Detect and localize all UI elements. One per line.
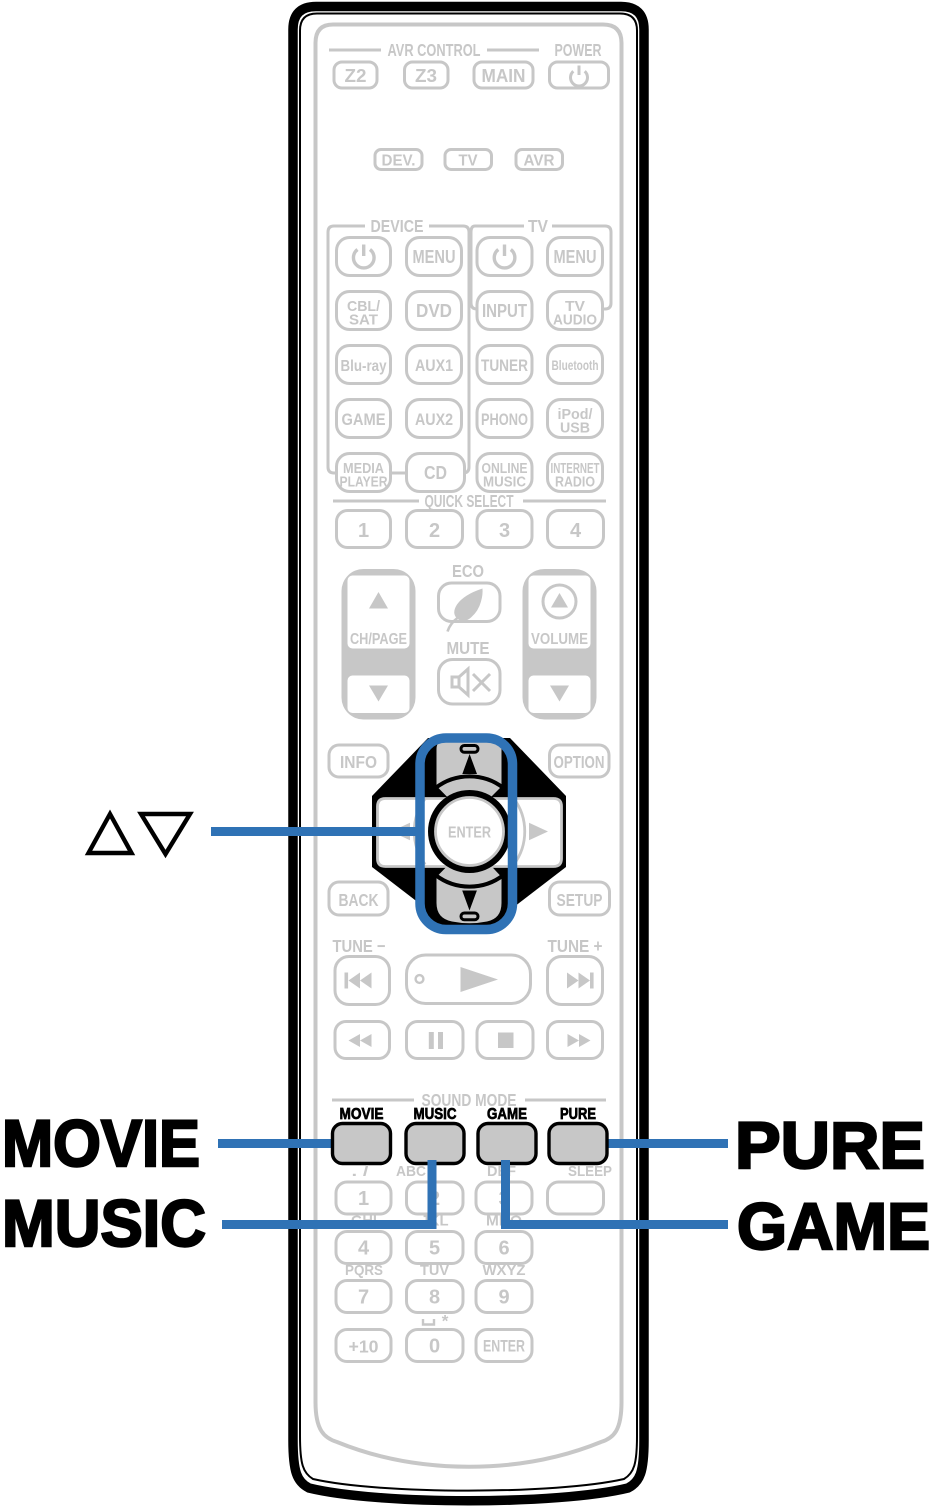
svg-text:9: 9 bbox=[498, 1287, 509, 1309]
svg-text:TUNE +: TUNE + bbox=[548, 936, 603, 956]
svg-text:POWER: POWER bbox=[555, 40, 602, 60]
svg-text:6: 6 bbox=[498, 1238, 509, 1260]
svg-text:0: 0 bbox=[429, 1336, 440, 1358]
svg-text:QUICK SELECT: QUICK SELECT bbox=[425, 491, 514, 511]
svg-text:*: * bbox=[442, 1312, 449, 1331]
svg-text:DVD: DVD bbox=[416, 300, 452, 321]
svg-text:7: 7 bbox=[358, 1287, 369, 1309]
svg-text:Bluetooth: Bluetooth bbox=[552, 358, 599, 373]
svg-text:USB: USB bbox=[560, 420, 590, 437]
svg-text:AUDIO: AUDIO bbox=[553, 312, 597, 329]
svg-text:TV: TV bbox=[528, 216, 548, 236]
svg-text:DEVICE: DEVICE bbox=[371, 216, 424, 236]
svg-text:Z3: Z3 bbox=[415, 66, 437, 86]
svg-text:BACK: BACK bbox=[339, 890, 379, 910]
svg-text:PURE: PURE bbox=[560, 1106, 596, 1123]
svg-text:VOLUME: VOLUME bbox=[531, 631, 588, 648]
svg-text:AUX2: AUX2 bbox=[415, 410, 453, 429]
svg-text:CD: CD bbox=[424, 462, 447, 483]
svg-text:MOVIE: MOVIE bbox=[2, 1106, 200, 1180]
svg-text:MENU: MENU bbox=[413, 246, 456, 267]
svg-text:. /: . / bbox=[352, 1163, 370, 1180]
svg-text:TUNER: TUNER bbox=[481, 356, 528, 375]
svg-text:8: 8 bbox=[429, 1287, 440, 1309]
svg-text:INFO: INFO bbox=[340, 752, 377, 772]
svg-text:PLAYER: PLAYER bbox=[340, 475, 388, 491]
svg-text:MUSIC: MUSIC bbox=[483, 475, 526, 491]
svg-text:SAT: SAT bbox=[349, 312, 378, 329]
svg-text:AUX1: AUX1 bbox=[415, 356, 453, 375]
svg-text:OPTION: OPTION bbox=[554, 752, 605, 772]
svg-text:MUTE: MUTE bbox=[447, 638, 490, 658]
svg-text:TV: TV bbox=[459, 153, 479, 170]
svg-text:TUV: TUV bbox=[420, 1262, 449, 1279]
svg-text:GAME: GAME bbox=[737, 1189, 930, 1263]
svg-text:ECO: ECO bbox=[452, 561, 484, 581]
svg-text:MUSIC: MUSIC bbox=[414, 1106, 457, 1123]
svg-text:PURE: PURE bbox=[735, 1108, 925, 1182]
svg-text:CH/PAGE: CH/PAGE bbox=[350, 631, 407, 648]
svg-text:MAIN: MAIN bbox=[482, 66, 526, 86]
svg-text:AVR CONTROL: AVR CONTROL bbox=[388, 40, 481, 60]
svg-text:ENTER: ENTER bbox=[448, 825, 491, 842]
svg-text:MENU: MENU bbox=[554, 246, 597, 267]
svg-text:RADIO: RADIO bbox=[555, 475, 595, 491]
svg-text:Blu-ray: Blu-ray bbox=[341, 358, 387, 375]
svg-text:PQRS: PQRS bbox=[345, 1262, 383, 1279]
svg-text:+10: +10 bbox=[349, 1337, 379, 1357]
svg-text:MOVIE: MOVIE bbox=[340, 1106, 384, 1123]
svg-text:1: 1 bbox=[358, 1188, 369, 1210]
svg-text:Z2: Z2 bbox=[345, 66, 367, 86]
svg-text:WXYZ: WXYZ bbox=[483, 1262, 526, 1279]
svg-text:GAME: GAME bbox=[342, 411, 386, 429]
svg-text:4: 4 bbox=[570, 520, 582, 542]
svg-text:2: 2 bbox=[429, 520, 440, 542]
svg-text:DEV.: DEV. bbox=[382, 153, 416, 170]
svg-text:PHONO: PHONO bbox=[481, 411, 528, 429]
svg-text:SLEEP: SLEEP bbox=[568, 1163, 612, 1180]
svg-text:INPUT: INPUT bbox=[482, 300, 528, 321]
svg-text:GAME: GAME bbox=[487, 1106, 527, 1123]
svg-text:AVR: AVR bbox=[524, 153, 555, 170]
svg-text:3: 3 bbox=[499, 520, 510, 542]
svg-text:SETUP: SETUP bbox=[557, 890, 603, 910]
svg-text:MUSIC: MUSIC bbox=[2, 1186, 206, 1260]
svg-text:5: 5 bbox=[429, 1238, 440, 1260]
svg-text:TUNE −: TUNE − bbox=[333, 936, 386, 956]
svg-text:ABC: ABC bbox=[396, 1163, 426, 1180]
svg-text:1: 1 bbox=[358, 520, 369, 542]
svg-text:ENTER: ENTER bbox=[483, 1338, 525, 1356]
svg-text:4: 4 bbox=[358, 1238, 370, 1260]
